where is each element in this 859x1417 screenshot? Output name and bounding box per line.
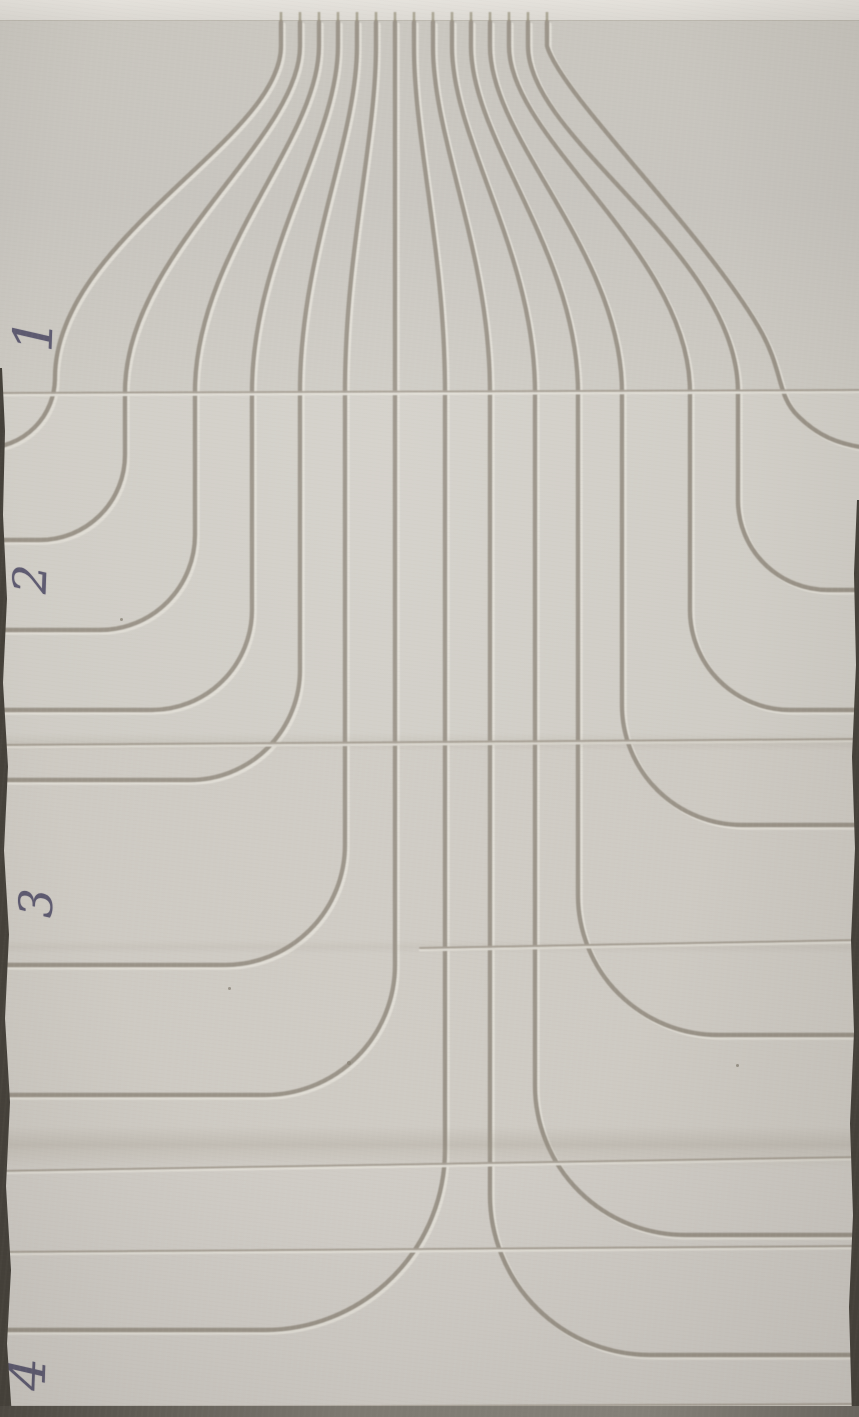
channel-entry-tick bbox=[375, 12, 378, 21]
channel-entry-tick bbox=[432, 12, 435, 21]
channel-groove-shadow bbox=[0, 22, 445, 1330]
channel-entry-tick bbox=[527, 12, 530, 21]
handwritten-label-2: 2 bbox=[1, 550, 59, 608]
board-seam-shadow bbox=[0, 1157, 859, 1171]
dust-speck bbox=[228, 987, 231, 990]
channel-entry-tick bbox=[318, 12, 321, 21]
dust-speck bbox=[347, 1061, 351, 1065]
channel-groove-shadow bbox=[547, 22, 859, 448]
channel-groove-shadow bbox=[471, 22, 859, 1035]
channel-entry-tick bbox=[337, 12, 340, 21]
handwritten-label-3: 3 bbox=[7, 874, 65, 932]
channel-groove-shadow bbox=[0, 22, 376, 965]
channel-entry-tick bbox=[489, 12, 492, 21]
channel-entry-tick bbox=[413, 12, 416, 21]
channel-groove-highlight bbox=[550, 25, 859, 451]
channel-groove-highlight bbox=[0, 25, 341, 713]
channel-groove-highlight bbox=[455, 25, 859, 1238]
channel-entry-tick bbox=[470, 12, 473, 21]
channel-groove-shadow bbox=[509, 22, 859, 710]
routed-panel-photo: 1 2 3 4 bbox=[0, 0, 859, 1417]
dust-speck bbox=[736, 1064, 739, 1067]
grooves-svg bbox=[0, 0, 859, 1417]
channel-entry-tick bbox=[451, 12, 454, 21]
channel-groove-shadow bbox=[433, 22, 859, 1355]
channel-entry-tick bbox=[356, 12, 359, 21]
substrate-edge-bottom bbox=[0, 1406, 859, 1417]
channel-groove-shadow bbox=[452, 22, 859, 1235]
handwritten-label-1: 1 bbox=[4, 306, 62, 364]
board-seam-highlight bbox=[0, 1159, 859, 1173]
channel-entry-tick bbox=[280, 12, 283, 21]
channel-entry-tick bbox=[299, 12, 302, 21]
groove-paths-group bbox=[0, 12, 859, 1410]
dust-speck bbox=[120, 618, 123, 621]
channel-entry-tick bbox=[546, 12, 549, 21]
channel-groove-highlight bbox=[474, 25, 859, 1038]
channel-groove-highlight bbox=[493, 25, 859, 828]
channel-entry-tick bbox=[508, 12, 511, 21]
channel-groove-highlight bbox=[0, 25, 379, 968]
channel-groove-highlight bbox=[512, 25, 859, 713]
channel-entry-tick bbox=[394, 12, 397, 21]
